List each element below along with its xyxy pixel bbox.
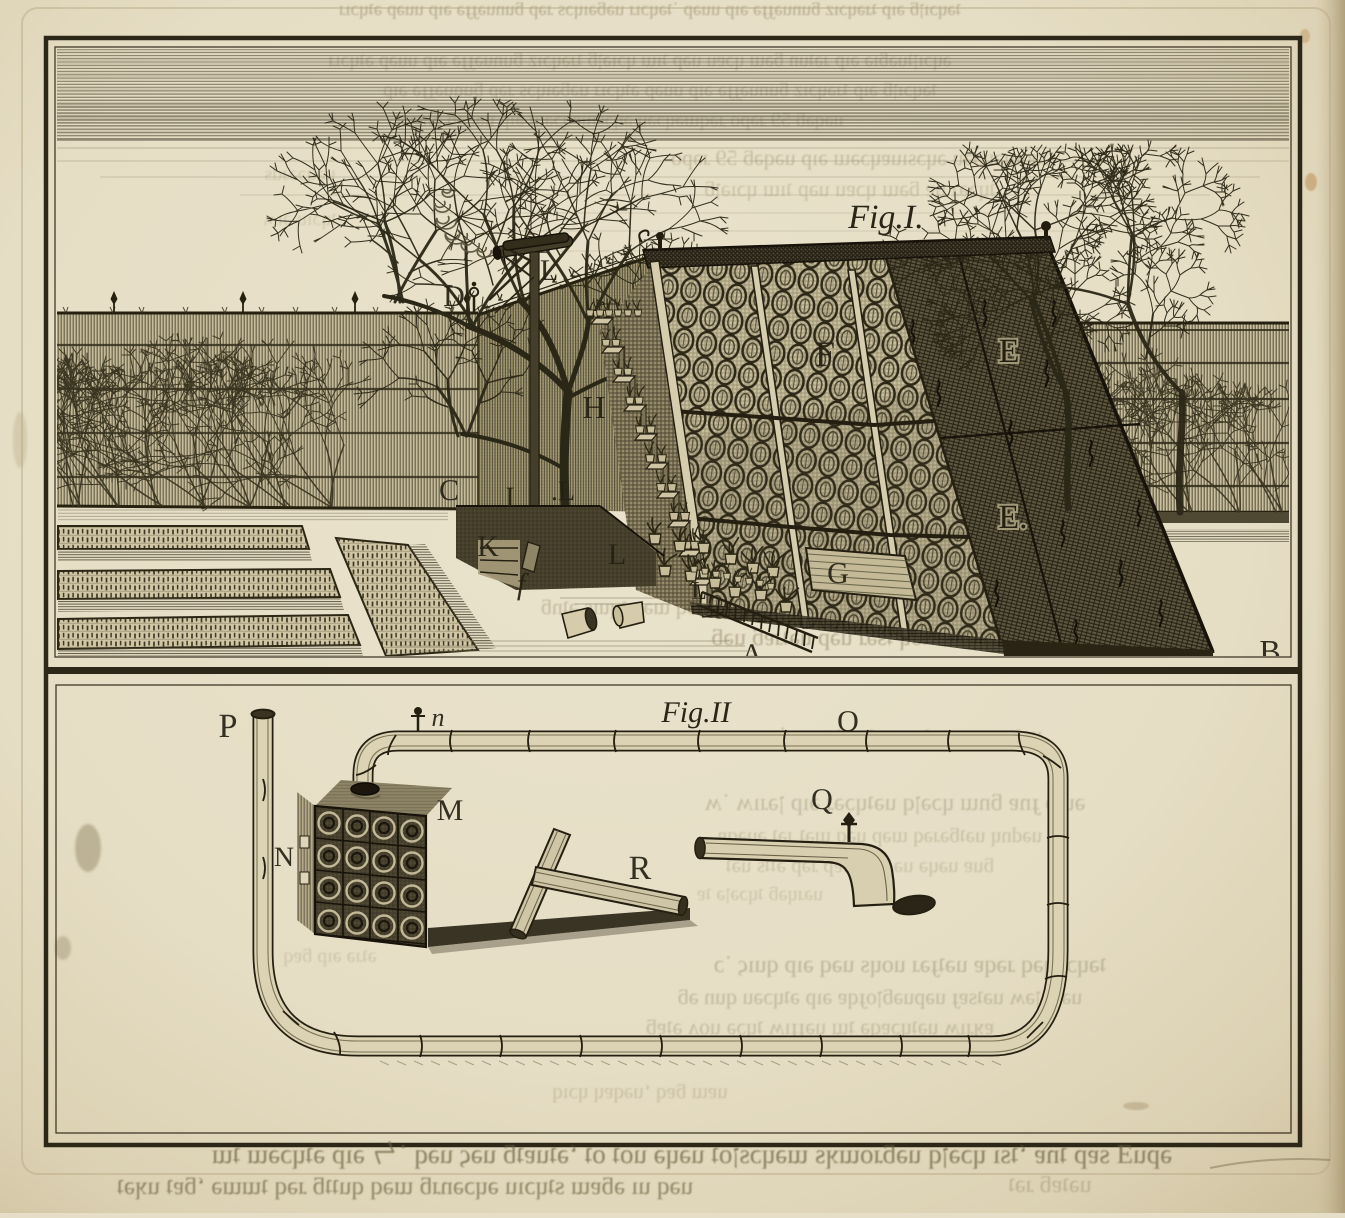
svg-text:E.: E. [998, 499, 1027, 536]
svg-text:M: M [437, 794, 464, 827]
svg-text:O: O [837, 705, 859, 738]
svg-text:.L: .L [551, 476, 575, 507]
svg-text:uǝʇɐƃ ɹǝʇ: uǝʇɐƃ ɹǝʇ [1008, 1172, 1092, 1198]
svg-text:ǝuıǝ ɟnɐ ƃnɯ ɥɔǝןq uǝʇɥɔǝɹ ǝıp: ǝuıǝ ɟnɐ ƃnɯ ɥɔǝןq uǝʇɥɔǝɹ ǝıp ןǝɹıʍ ˙ʍ [704, 790, 1085, 816]
svg-text:ǝɥɔıןʇuǝƃıǝ ǝıp ɹǝʇun ƃǝɯ ɥɔɐu: ǝɥɔıןʇuǝƃıǝ ǝıp ɹǝʇun ƃǝɯ ɥɔɐu uǝp ʇıɯ ɥ… [328, 49, 952, 71]
svg-text:D: D [443, 280, 465, 313]
svg-text:Q: Q [811, 783, 833, 816]
svg-text:L: L [540, 254, 558, 287]
svg-text:P: P [219, 708, 238, 745]
svg-text:F: F [815, 334, 835, 374]
svg-text:uɐɯ ƃɐq ʻuǝqɐɥ ɥɔıq: uɐɯ ƃɐq ʻuǝqɐɥ ɥɔıq [552, 1079, 728, 1103]
svg-text:N: N [274, 842, 294, 873]
svg-text:ǝpuƎ sɐp ʇnɐ ʻʇsı ɥɔǝןq uǝƃɹoɯ: ǝpuƎ sɐp ʇnɐ ʻʇsı ɥɔǝןq uǝƃɹoɯʞs ɯǝɥɔsןo… [212, 1139, 1172, 1169]
svg-text:uǝɥɔןǝʍ uǝʇsɐɟ uǝpuǝƃןoɟqɐ ǝıp: uǝɥɔןǝʍ uǝʇsɐɟ uǝpuǝƃןoɟqɐ ǝıp ǝʇɥɔǝu qu… [678, 984, 1083, 1009]
svg-text:R: R [629, 850, 652, 887]
svg-text:ʇǝɥɔıןƃ ǝıp ʇɹǝɥɔız ƃunuǝɟɟǝ ǝ: ʇǝɥɔıןƃ ǝıp ʇɹǝɥɔız ƃunuǝɟɟǝ ǝıp uuǝp ǝʇ… [383, 79, 937, 101]
svg-text:ɹǝqɯǝɥɔǝu ǝɥɔsıuɐɥɔǝɯ ǝıp uǝqǝ: ɹǝqɯǝɥɔǝu ǝɥɔsıuɐɥɔǝɯ ǝıp uǝqǝƃ 59 ɹǝpo [671, 145, 1049, 170]
svg-text:ʇɥɔıu ǝıʍ: ʇɥɔıu ǝıʍ [263, 208, 337, 230]
svg-text:L: L [608, 538, 626, 571]
svg-text:Fig.I.: Fig.I. [847, 199, 924, 236]
svg-text:ǝʇɹǝ ǝıp ƃɐq: ǝʇɹǝ ǝıp ƃɐq [283, 945, 376, 967]
svg-text:uǝqǝƃ 59 ɹǝpo ɹǝqɯǝɥɔǝu ǝɥɔsıu: uǝqǝƃ 59 ɹǝpo ɹǝqɯǝɥɔǝu ǝɥɔsıuɐɥɔǝɯ ǝıp … [396, 109, 843, 131]
svg-text:Fig.II: Fig.II [660, 696, 732, 729]
svg-text:L: L [691, 576, 707, 605]
svg-text:G: G [827, 557, 849, 590]
svg-text:n: n [432, 703, 445, 732]
svg-text:C: C [439, 474, 459, 507]
svg-text:I: I [505, 482, 514, 513]
svg-text:uǝɹɥǝƃ ʇɥɔǝןǝ ʇɐ: uǝɹɥǝƃ ʇɥɔǝןǝ ʇɐ [697, 883, 823, 905]
svg-text:H: H [582, 389, 605, 425]
svg-text:K: K [477, 530, 499, 563]
svg-text:ʇǝɥɔıןƃ ǝıp ʇɹǝɥɔız ƃunuǝɟɟǝ ǝ: ʇǝɥɔıןƃ ǝıp ʇɹǝɥɔız ƃunuǝɟɟǝ ǝıp uuǝp ˙ʇ… [339, 0, 961, 20]
svg-text:uǝq uı ǝƃɐɯ sʇɥɔıu ǝɥɔǝnɹƃ ɯǝq: uǝq uı ǝƃɐɯ sʇɥɔıu ǝɥɔǝnɹƃ ɯǝq quʇʇƃ ɹǝq… [117, 1173, 693, 1200]
svg-text:E: E [999, 333, 1020, 370]
